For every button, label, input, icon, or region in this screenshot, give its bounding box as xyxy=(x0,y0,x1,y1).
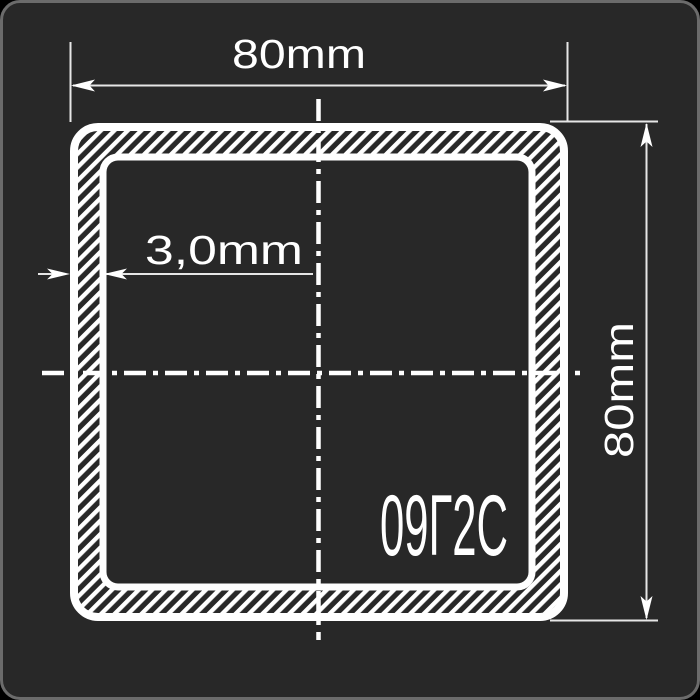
thickness-dimension-label: 3,0mm xyxy=(145,227,303,273)
drawing-canvas: 80mm 3,0mm 80mm 09Г2С xyxy=(0,0,700,700)
steel-grade-label: 09Г2С xyxy=(380,478,508,574)
height-dimension-label: 80mm xyxy=(596,322,642,458)
width-dimension-label: 80mm xyxy=(232,31,366,77)
